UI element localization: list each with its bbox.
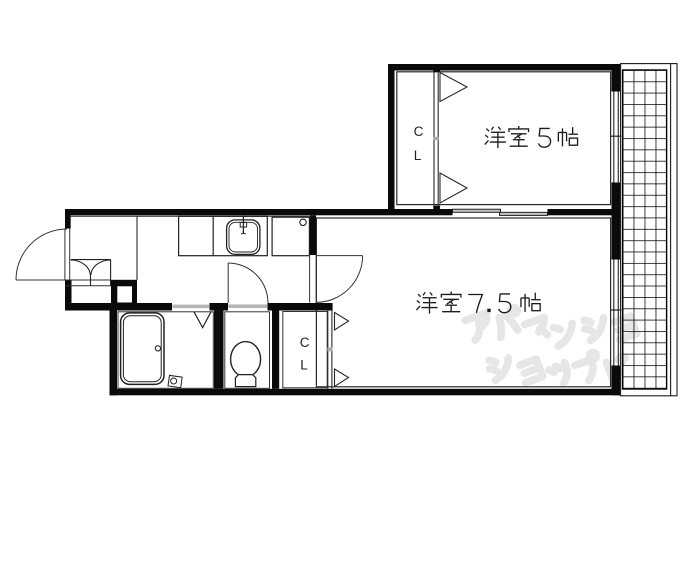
svg-text:L: L: [414, 148, 422, 163]
svg-text:C: C: [414, 124, 424, 139]
svg-text:C: C: [300, 335, 310, 350]
svg-text:L: L: [300, 358, 308, 373]
